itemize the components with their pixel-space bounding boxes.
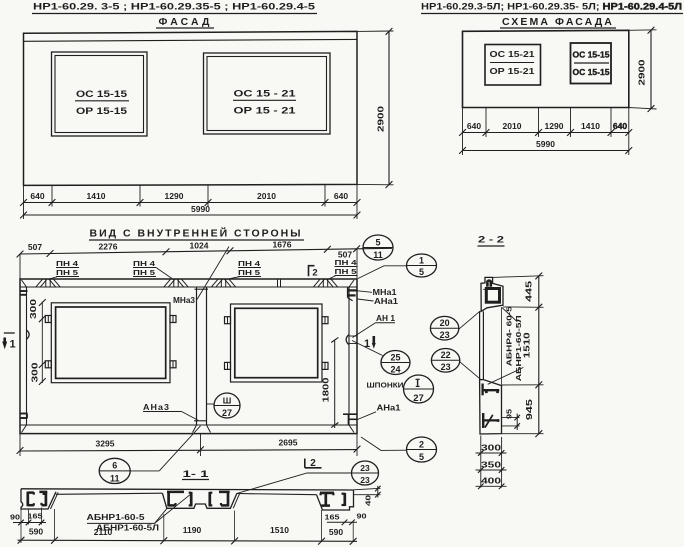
svg-text:590: 590 xyxy=(29,527,43,537)
svg-text:350: 350 xyxy=(481,460,501,470)
svg-text:ОР 15-21: ОР 15-21 xyxy=(490,66,535,76)
svg-text:90: 90 xyxy=(357,512,367,521)
svg-text:1: 1 xyxy=(419,255,424,265)
svg-text:5: 5 xyxy=(375,237,380,247)
svg-text:5: 5 xyxy=(419,267,424,277)
svg-text:1190: 1190 xyxy=(183,525,202,535)
svg-text:590: 590 xyxy=(329,527,343,537)
svg-text:2695: 2695 xyxy=(279,438,298,448)
svg-text:23: 23 xyxy=(360,463,370,473)
svg-text:6: 6 xyxy=(112,461,117,471)
svg-text:ШПОНКИ: ШПОНКИ xyxy=(367,381,404,390)
svg-text:640: 640 xyxy=(467,121,481,131)
svg-text:МНа1: МНа1 xyxy=(373,288,398,297)
svg-text:1410: 1410 xyxy=(581,121,600,131)
svg-text:165: 165 xyxy=(325,513,340,522)
svg-text:ПН 4: ПН 4 xyxy=(335,258,358,267)
svg-text:507: 507 xyxy=(28,242,42,252)
svg-text:ПН 4: ПН 4 xyxy=(238,259,261,268)
svg-text:НР1-60.29. 3-5 ; НР1-60.29.35-: НР1-60.29. 3-5 ; НР1-60.29.35-5 ; НР1-60… xyxy=(33,2,316,13)
svg-text:300: 300 xyxy=(29,298,38,319)
svg-text:23: 23 xyxy=(440,330,450,340)
svg-text:27: 27 xyxy=(413,393,424,404)
svg-text:1290: 1290 xyxy=(545,121,564,131)
svg-text:2010: 2010 xyxy=(503,121,522,131)
svg-text:ФАСАД: ФАСАД xyxy=(159,17,213,28)
svg-text:2110: 2110 xyxy=(94,527,113,537)
svg-text:2: 2 xyxy=(419,439,424,449)
svg-text:ПН 5: ПН 5 xyxy=(56,268,78,277)
svg-text:1: 1 xyxy=(9,339,15,351)
svg-text:23: 23 xyxy=(360,475,370,485)
svg-text:ПН 5: ПН 5 xyxy=(238,268,260,277)
svg-text:АНа1: АНа1 xyxy=(374,297,399,306)
svg-text:АНа3: АНа3 xyxy=(143,402,170,412)
svg-text:23: 23 xyxy=(441,362,451,372)
svg-text:95: 95 xyxy=(507,409,514,419)
svg-text:40: 40 xyxy=(364,495,373,506)
svg-text:ОС 15-15: ОС 15-15 xyxy=(76,89,128,100)
svg-text:300: 300 xyxy=(31,362,40,383)
svg-text:ОР 15 - 21: ОР 15 - 21 xyxy=(234,105,297,116)
svg-text:25: 25 xyxy=(390,352,400,362)
svg-text:11: 11 xyxy=(373,250,383,260)
svg-text:1290: 1290 xyxy=(165,191,184,201)
svg-text:300: 300 xyxy=(481,443,501,453)
svg-text:ОС 15-15: ОС 15-15 xyxy=(573,50,610,60)
svg-text:3295: 3295 xyxy=(96,439,115,449)
svg-text:Ш: Ш xyxy=(223,395,232,405)
svg-text:ВИД С ВНУТРЕННЕЙ СТОРОНЫ: ВИД С ВНУТРЕННЕЙ СТОРОНЫ xyxy=(90,227,303,240)
svg-text:1410: 1410 xyxy=(87,191,106,201)
svg-text:5990: 5990 xyxy=(191,204,210,214)
svg-text:1024: 1024 xyxy=(190,241,209,251)
svg-text:2900: 2900 xyxy=(376,106,386,132)
svg-text:ПН 4: ПН 4 xyxy=(133,259,156,268)
svg-text:МНа3: МНа3 xyxy=(173,296,196,305)
svg-text:27: 27 xyxy=(222,408,232,418)
svg-text:АН 1: АН 1 xyxy=(376,314,396,323)
svg-text:165: 165 xyxy=(28,512,43,521)
svg-text:640: 640 xyxy=(30,191,44,201)
svg-text:1510: 1510 xyxy=(270,525,289,535)
svg-text:5990: 5990 xyxy=(536,139,555,149)
svg-text:СХЕМА ФАСАДА: СХЕМА ФАСАДА xyxy=(502,17,614,28)
svg-text:2276: 2276 xyxy=(99,242,118,252)
svg-text:1676: 1676 xyxy=(273,240,292,250)
svg-text:ПН 5: ПН 5 xyxy=(335,267,357,276)
svg-text:400: 400 xyxy=(481,476,501,486)
svg-text:5: 5 xyxy=(419,452,424,462)
svg-text:11: 11 xyxy=(110,473,120,483)
svg-text:1800: 1800 xyxy=(321,377,331,402)
svg-text:640: 640 xyxy=(334,191,348,201)
svg-text:2010: 2010 xyxy=(257,191,276,201)
svg-text:АБНР1-60-5: АБНР1-60-5 xyxy=(87,513,146,522)
svg-text:НР1-60.29.3-5Л; НР1-60.29.35-: НР1-60.29.3-5Л; НР1-60.29.35- 5Л; НР1-60… xyxy=(421,2,682,13)
svg-text:2900: 2900 xyxy=(637,59,647,85)
svg-text:20: 20 xyxy=(440,318,450,328)
svg-text:640: 640 xyxy=(613,121,627,131)
svg-text:АНа1: АНа1 xyxy=(377,404,402,413)
svg-text:445: 445 xyxy=(524,281,534,302)
svg-text:ОС 15 - 21: ОС 15 - 21 xyxy=(234,89,297,100)
svg-text:945: 945 xyxy=(524,399,534,420)
svg-text:22: 22 xyxy=(441,350,451,360)
svg-text:ОС 15-15: ОС 15-15 xyxy=(573,67,610,77)
svg-text:ПН 5: ПН 5 xyxy=(133,268,155,277)
svg-text:90: 90 xyxy=(10,513,20,522)
svg-text:2: 2 xyxy=(310,458,316,469)
svg-text:ОР 15-15: ОР 15-15 xyxy=(76,106,128,117)
svg-text:1- 1: 1- 1 xyxy=(183,469,210,480)
svg-text:ОС 15-21: ОС 15-21 xyxy=(490,49,535,59)
svg-text:2: 2 xyxy=(312,268,317,279)
svg-text:24: 24 xyxy=(390,364,400,374)
svg-text:АБНР4- 60-5: АБНР4- 60-5 xyxy=(504,306,513,366)
svg-text:2 - 2: 2 - 2 xyxy=(478,235,504,246)
svg-text:ПН 4: ПН 4 xyxy=(56,259,79,268)
